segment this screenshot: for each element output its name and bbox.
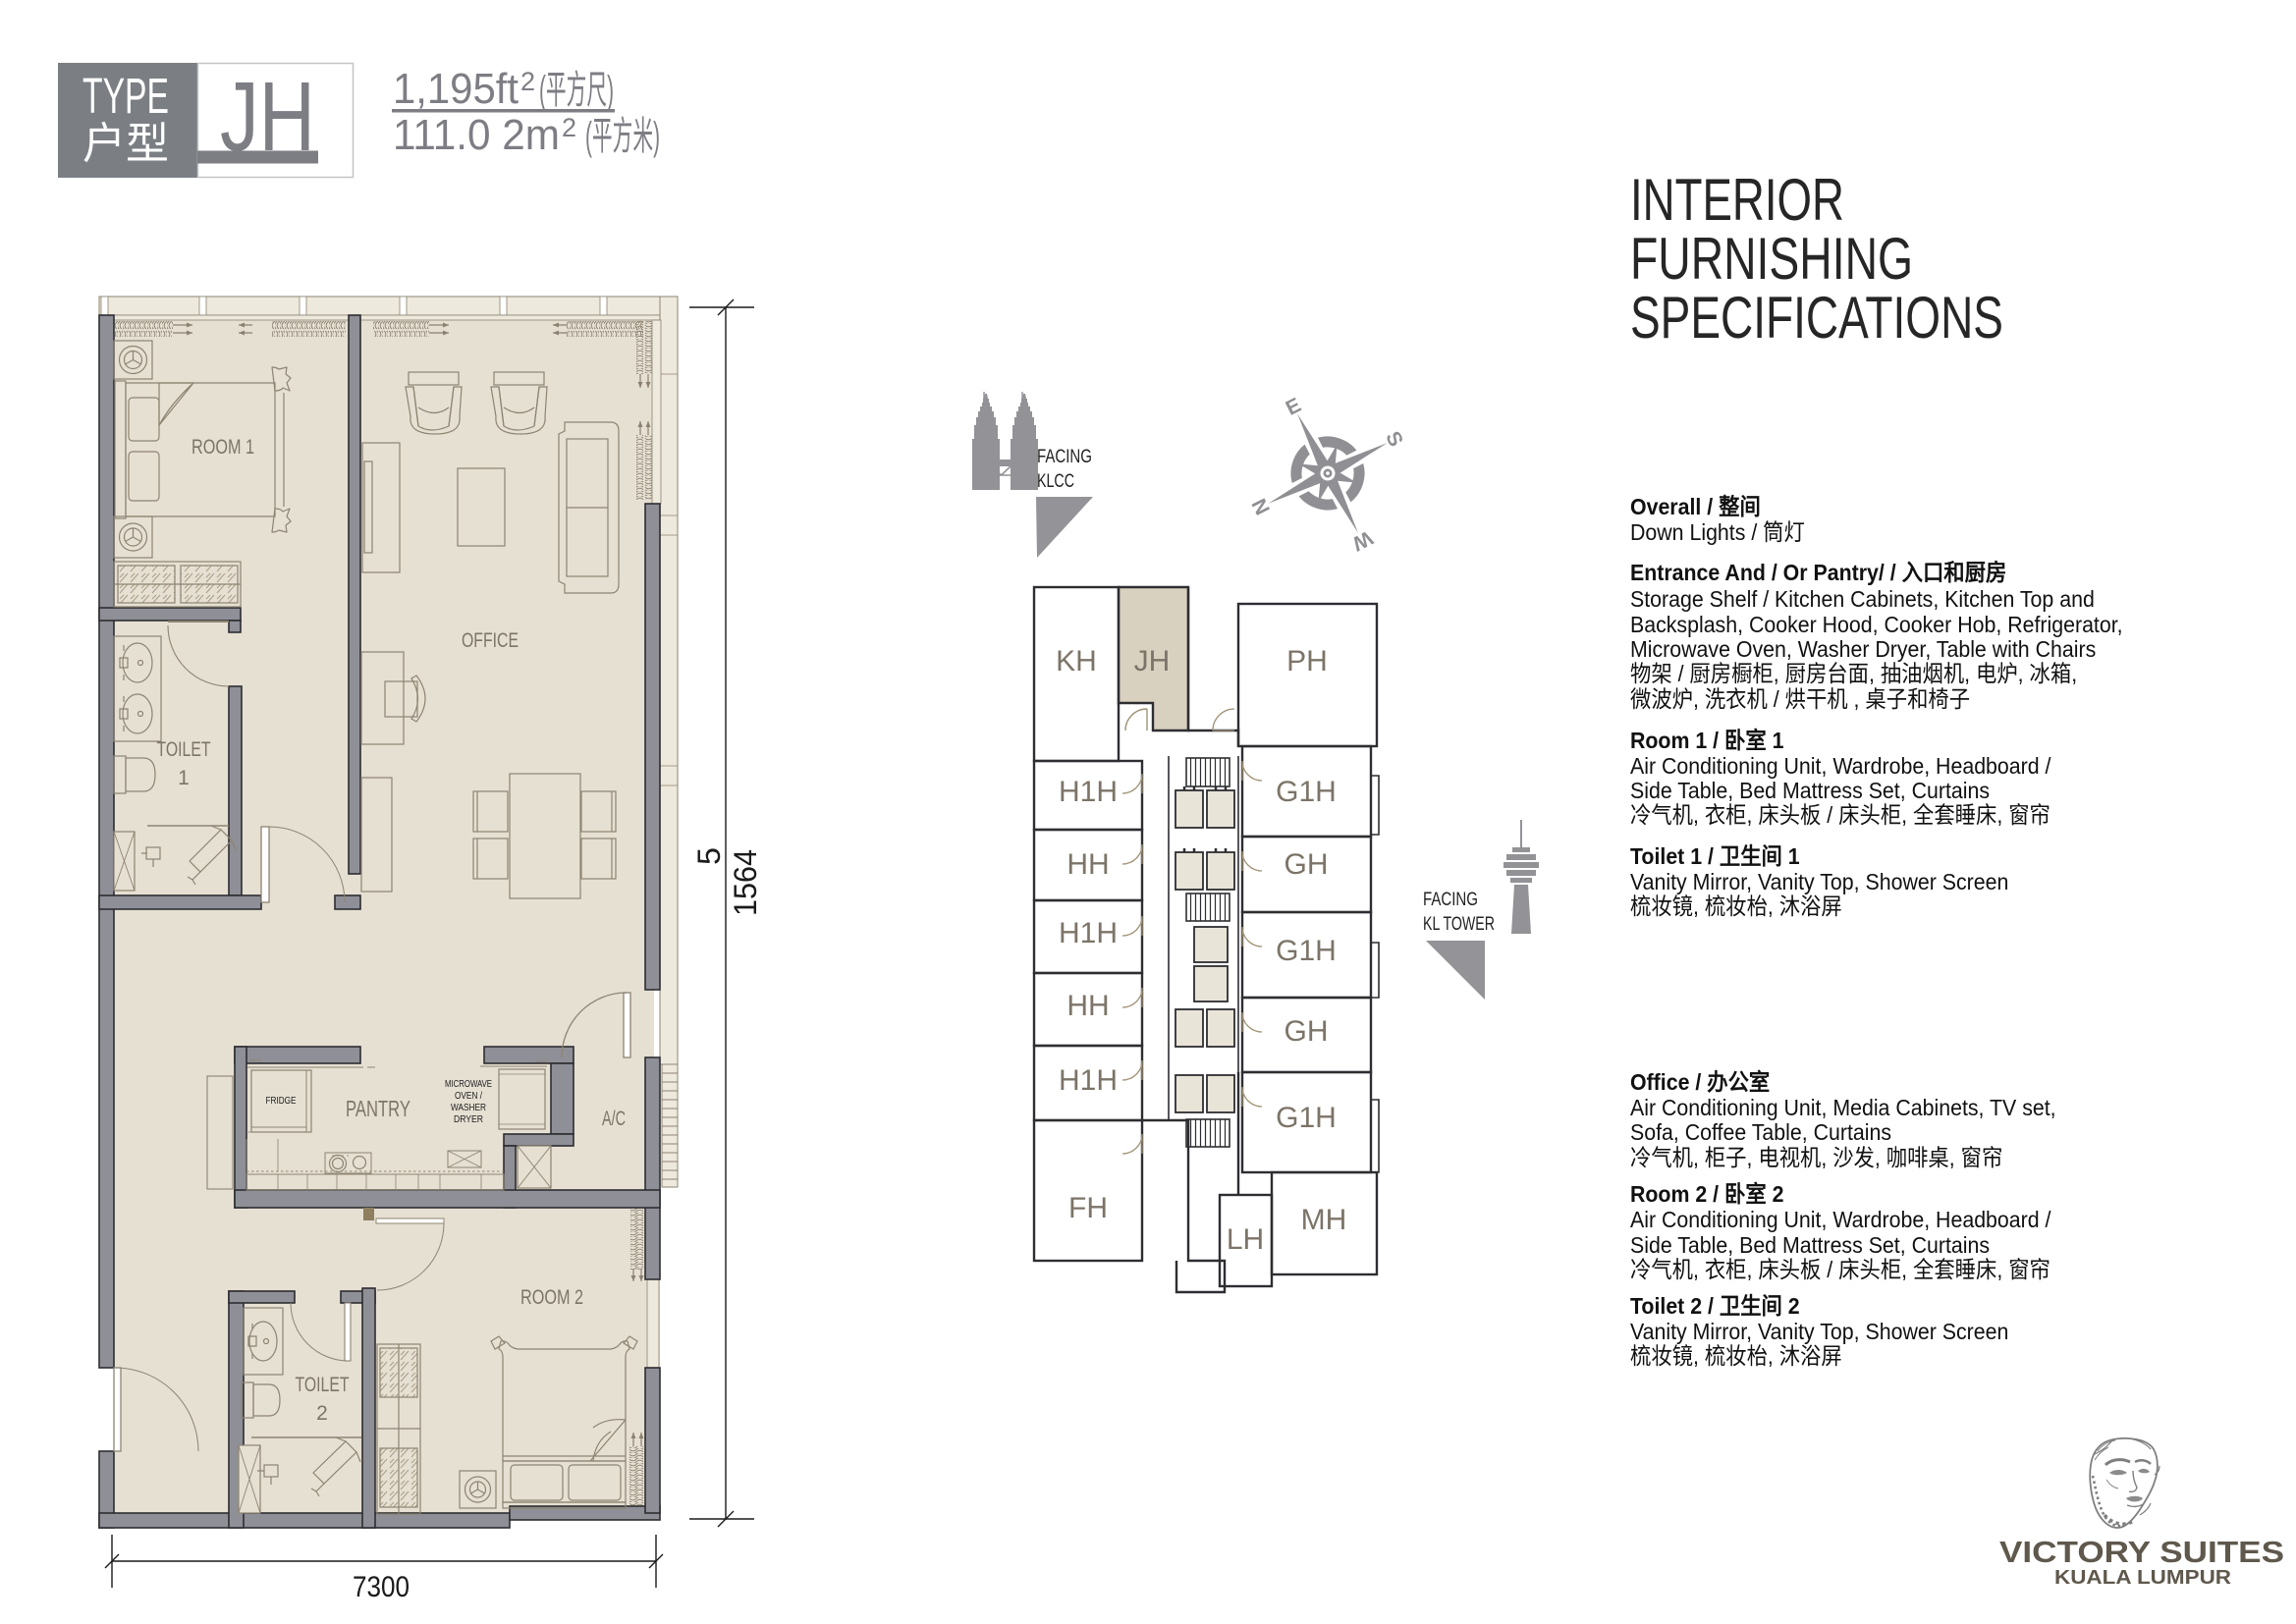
svg-text:FH: FH: [1068, 1192, 1108, 1224]
svg-text:Toilet 1 / 卫生间 1: Toilet 1 / 卫生间 1: [1630, 843, 1800, 869]
svg-text:111.0 2m: 111.0 2m: [393, 111, 560, 159]
svg-text:G1H: G1H: [1276, 935, 1337, 967]
svg-text:HH: HH: [1066, 990, 1109, 1022]
svg-text:HH: HH: [1066, 848, 1109, 881]
svg-text:H1H: H1H: [1059, 776, 1118, 808]
svg-text:Room 2 / 卧室 2: Room 2 / 卧室 2: [1630, 1180, 1783, 1207]
svg-text:MH: MH: [1301, 1204, 1347, 1236]
svg-text:Room 1 / 卧室 1: Room 1 / 卧室 1: [1630, 727, 1783, 753]
svg-text:1,195ft: 1,195ft: [393, 65, 519, 113]
svg-text:W: W: [1348, 526, 1376, 556]
svg-text:TOILET: TOILET: [157, 738, 211, 761]
svg-text:Office / 办公室: Office / 办公室: [1630, 1068, 1770, 1095]
svg-text:Air Conditioning Unit, Wardrob: Air Conditioning Unit, Wardrobe, Headboa…: [1630, 1207, 2051, 1232]
svg-text:Backsplash, Cooker Hood, Cooke: Backsplash, Cooker Hood, Cooker Hob, Ref…: [1630, 612, 2123, 637]
svg-text:A/C: A/C: [602, 1108, 626, 1130]
svg-text:FACING: FACING: [1423, 889, 1478, 910]
svg-text:G1H: G1H: [1276, 1102, 1337, 1134]
svg-text:N: N: [1248, 495, 1275, 518]
svg-text:Sofa, Coffee Table, Curtains: Sofa, Coffee Table, Curtains: [1630, 1119, 1891, 1145]
svg-text:7300: 7300: [353, 1571, 410, 1603]
svg-text:S: S: [1381, 428, 1407, 451]
svg-text:(平方米): (平方米): [585, 115, 660, 158]
svg-text:ROOM 2: ROOM 2: [520, 1286, 583, 1309]
svg-text:Air Conditioning Unit, Media C: Air Conditioning Unit, Media Cabinets, T…: [1630, 1095, 2056, 1120]
svg-text:1: 1: [178, 767, 190, 789]
svg-text:E: E: [1283, 394, 1305, 420]
svg-text:KH: KH: [1056, 645, 1097, 677]
svg-text:H1H: H1H: [1059, 1064, 1118, 1097]
svg-text:MICROWAVE: MICROWAVE: [445, 1078, 492, 1090]
svg-text:微波炉, 洗衣机 / 烘干机 , 桌子和椅子: 微波炉, 洗衣机 / 烘干机 , 桌子和椅子: [1630, 686, 1970, 712]
svg-text:Air Conditioning Unit, Wardrob: Air Conditioning Unit, Wardrobe, Headboa…: [1630, 753, 2051, 779]
svg-text:WASHER: WASHER: [451, 1102, 486, 1113]
svg-text:Side Table, Bed Mattress Set,: Side Table, Bed Mattress Set, Curtains: [1630, 778, 1990, 803]
svg-text:冷气机, 衣柜, 床头板 / 床头柜, 全套睡床, 窗帘: 冷气机, 衣柜, 床头板 / 床头柜, 全套睡床, 窗帘: [1630, 802, 2050, 828]
svg-text:FRIDGE: FRIDGE: [266, 1096, 297, 1107]
svg-text:梳妆镜, 梳妆枱, 沐浴屏: 梳妆镜, 梳妆枱, 沐浴屏: [1630, 893, 1842, 919]
svg-text:梳妆镜, 梳妆枱, 沐浴屏: 梳妆镜, 梳妆枱, 沐浴屏: [1630, 1343, 1842, 1369]
svg-text:GH: GH: [1285, 1015, 1329, 1048]
svg-text:Entrance And / Or Pantry/ /: Entrance And / Or Pantry/ / 入口和厨房: [1630, 559, 2006, 585]
svg-text:Vanity Mirror, Vanity Top, Sho: Vanity Mirror, Vanity Top, Shower Screen: [1630, 1319, 2008, 1344]
svg-text:H1H: H1H: [1059, 917, 1118, 949]
svg-text:户型: 户型: [82, 120, 169, 168]
svg-text:SPECIFICATIONS: SPECIFICATIONS: [1630, 285, 2003, 351]
svg-text:INTERIOR: INTERIOR: [1630, 167, 1844, 233]
svg-text:冷气机, 衣柜, 床头板 / 床头柜, 全套睡床, 窗帘: 冷气机, 衣柜, 床头板 / 床头柜, 全套睡床, 窗帘: [1630, 1257, 2050, 1282]
svg-text:Microwave Oven, Washer Dryer,: Microwave Oven, Washer Dryer, Table with…: [1630, 636, 2096, 662]
svg-text:2: 2: [520, 67, 535, 96]
svg-text:物架 / 厨房橱柜, 厨房台面, 抽油烟机, 电炉, 冰箱,: 物架 / 厨房橱柜, 厨房台面, 抽油烟机, 电炉, 冰箱,: [1630, 661, 2077, 686]
svg-text:G1H: G1H: [1276, 776, 1337, 808]
svg-text:FURNISHING: FURNISHING: [1630, 226, 1913, 292]
svg-text:GH: GH: [1285, 848, 1329, 881]
svg-text:Vanity Mirror, Vanity Top, Sho: Vanity Mirror, Vanity Top, Shower Screen: [1630, 869, 2008, 894]
svg-text:ROOM 1: ROOM 1: [191, 436, 254, 459]
svg-text:1564: 1564: [728, 849, 763, 916]
svg-text:PANTRY: PANTRY: [346, 1096, 410, 1121]
svg-text:2: 2: [316, 1402, 328, 1425]
svg-text:LH: LH: [1227, 1223, 1264, 1256]
svg-text:KL TOWER: KL TOWER: [1423, 913, 1495, 935]
svg-text:PH: PH: [1286, 645, 1328, 677]
svg-text:TYPE: TYPE: [82, 68, 169, 124]
svg-text:TOILET: TOILET: [296, 1374, 350, 1396]
svg-text:JH: JH: [1134, 645, 1171, 677]
svg-text:Side Table, Bed Mattress Set,: Side Table, Bed Mattress Set, Curtains: [1630, 1232, 1990, 1258]
svg-text:DRYER: DRYER: [454, 1113, 483, 1125]
svg-text:(平方尺): (平方尺): [539, 69, 614, 112]
svg-text:冷气机, 柜子, 电视机, 沙发, 咖啡桌, 窗帘: 冷气机, 柜子, 电视机, 沙发, 咖啡桌, 窗帘: [1630, 1145, 2002, 1170]
svg-text:5: 5: [691, 847, 727, 865]
svg-text:OFFICE: OFFICE: [462, 629, 519, 652]
svg-text:FACING: FACING: [1037, 446, 1092, 467]
svg-text:Storage Shelf / Kitchen Cabine: Storage Shelf / Kitchen Cabinets, Kitche…: [1630, 586, 2095, 612]
svg-text:Down Lights / 筒灯: Down Lights / 筒灯: [1630, 519, 1805, 545]
svg-text:Overall / 整间: Overall / 整间: [1630, 493, 1761, 519]
svg-text:VICTORY SUITES: VICTORY SUITES: [1999, 1535, 2284, 1569]
svg-text:KLCC: KLCC: [1037, 470, 1074, 492]
svg-text:2: 2: [562, 113, 576, 142]
svg-text:OVEN /: OVEN /: [455, 1090, 482, 1102]
svg-text:Toilet 2 / 卫生间 2: Toilet 2 / 卫生间 2: [1630, 1293, 1800, 1319]
svg-text:KUALA LUMPUR: KUALA LUMPUR: [2054, 1567, 2232, 1589]
